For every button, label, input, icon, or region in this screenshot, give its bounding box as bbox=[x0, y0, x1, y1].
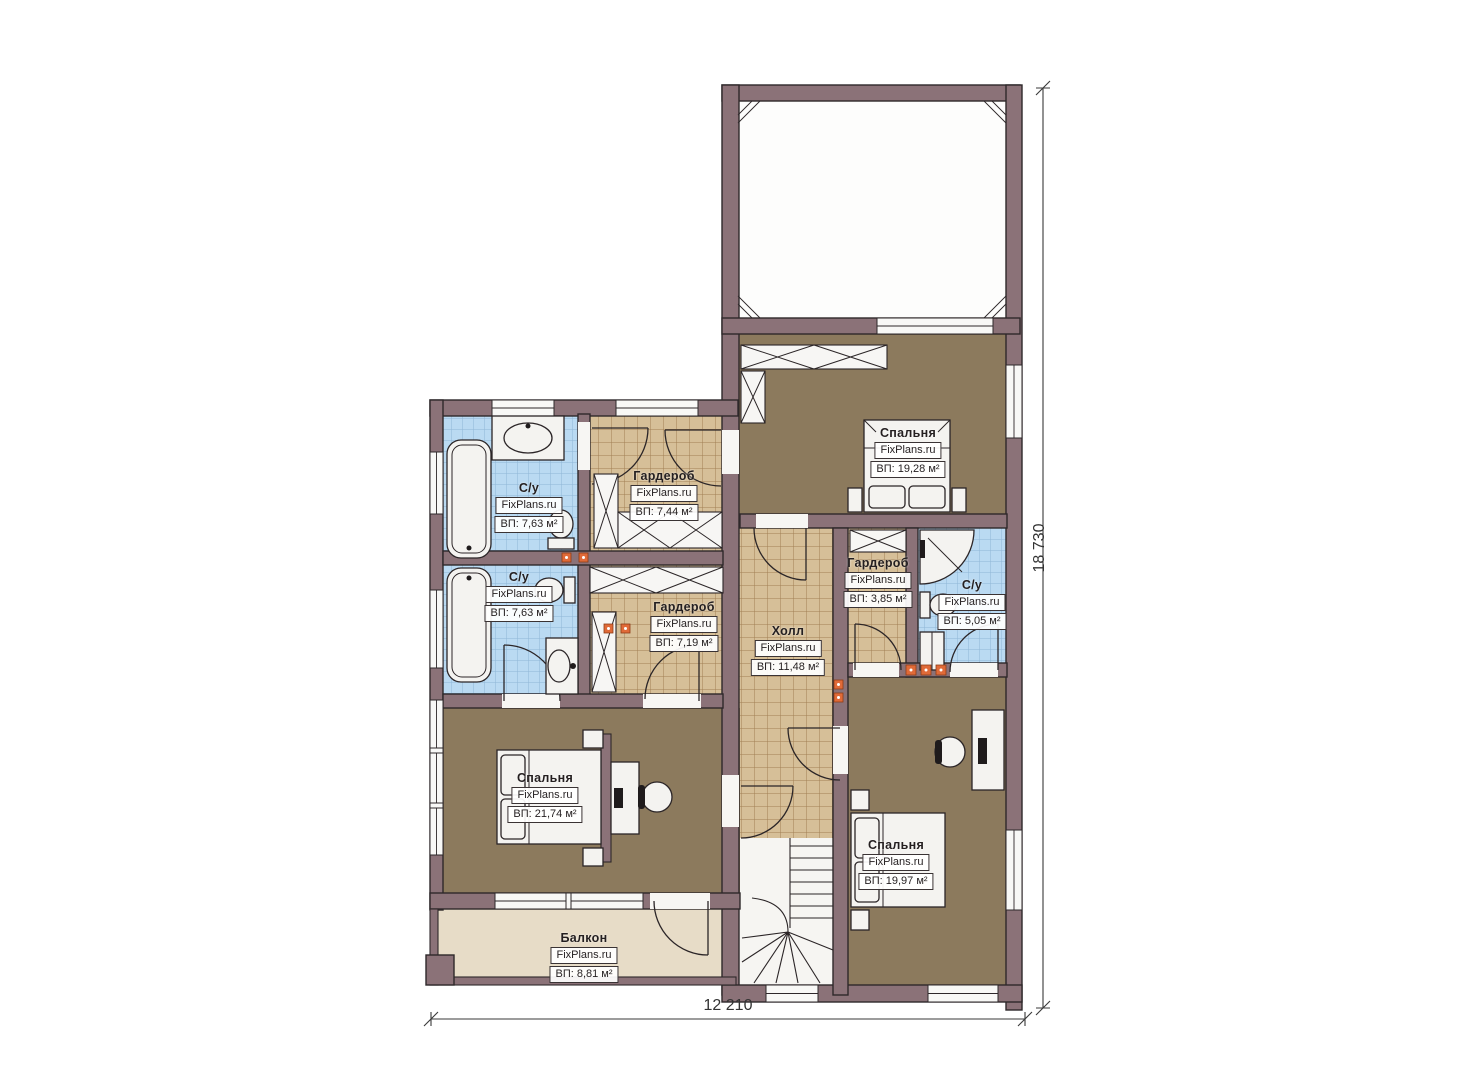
window bbox=[492, 400, 554, 416]
balcony-parapet bbox=[430, 977, 736, 985]
window bbox=[430, 700, 443, 855]
chair-icon bbox=[935, 737, 965, 767]
vent-marker bbox=[834, 680, 843, 689]
toilet-icon bbox=[535, 577, 575, 603]
stair-zone-floor bbox=[739, 838, 833, 985]
window bbox=[1006, 365, 1022, 438]
toilet-icon bbox=[920, 592, 956, 618]
room-balcony-floor bbox=[438, 909, 722, 979]
closet-icon bbox=[850, 530, 906, 552]
window bbox=[877, 318, 993, 334]
room-empty-top-floor bbox=[738, 101, 1006, 318]
bed-icon bbox=[848, 420, 966, 512]
vent-marker bbox=[579, 553, 588, 562]
bathtub-icon bbox=[447, 440, 491, 558]
window bbox=[1006, 830, 1022, 910]
window bbox=[616, 400, 698, 416]
dimension-width-label: 12 210 bbox=[704, 997, 753, 1015]
sink-icon bbox=[546, 638, 578, 694]
floor-plan-svg bbox=[0, 0, 1473, 1080]
toilet-icon bbox=[548, 510, 574, 549]
window bbox=[928, 985, 998, 1002]
bed-partition bbox=[601, 734, 611, 862]
closet-icon bbox=[741, 345, 887, 369]
vent-marker bbox=[604, 624, 613, 633]
dimension-height-label: 18 730 bbox=[1031, 524, 1049, 573]
vent-marker bbox=[834, 693, 843, 702]
window bbox=[430, 452, 443, 514]
vent-marker bbox=[921, 665, 931, 675]
closet-icon bbox=[618, 512, 722, 548]
sink-icon bbox=[492, 416, 564, 460]
vent-marker bbox=[936, 665, 946, 675]
closet-icon bbox=[590, 567, 723, 593]
cabinet-icon bbox=[920, 632, 944, 670]
window bbox=[430, 590, 443, 668]
vent-marker bbox=[621, 624, 630, 633]
balcony-post bbox=[426, 955, 454, 985]
closet-icon bbox=[594, 474, 618, 548]
vent-marker bbox=[906, 665, 916, 675]
bathtub-icon bbox=[447, 568, 491, 682]
closet-icon bbox=[741, 371, 765, 423]
floor-plan-canvas: С/у FixPlans.ru ВП: 7,63 м² Гардероб Fix… bbox=[0, 0, 1473, 1080]
chair-icon bbox=[638, 782, 672, 812]
room-hall-floor bbox=[739, 528, 833, 838]
vent-marker bbox=[562, 553, 571, 562]
desk-icon bbox=[972, 710, 1004, 790]
desk-icon bbox=[611, 762, 639, 834]
window bbox=[495, 893, 643, 909]
window bbox=[766, 985, 818, 1002]
